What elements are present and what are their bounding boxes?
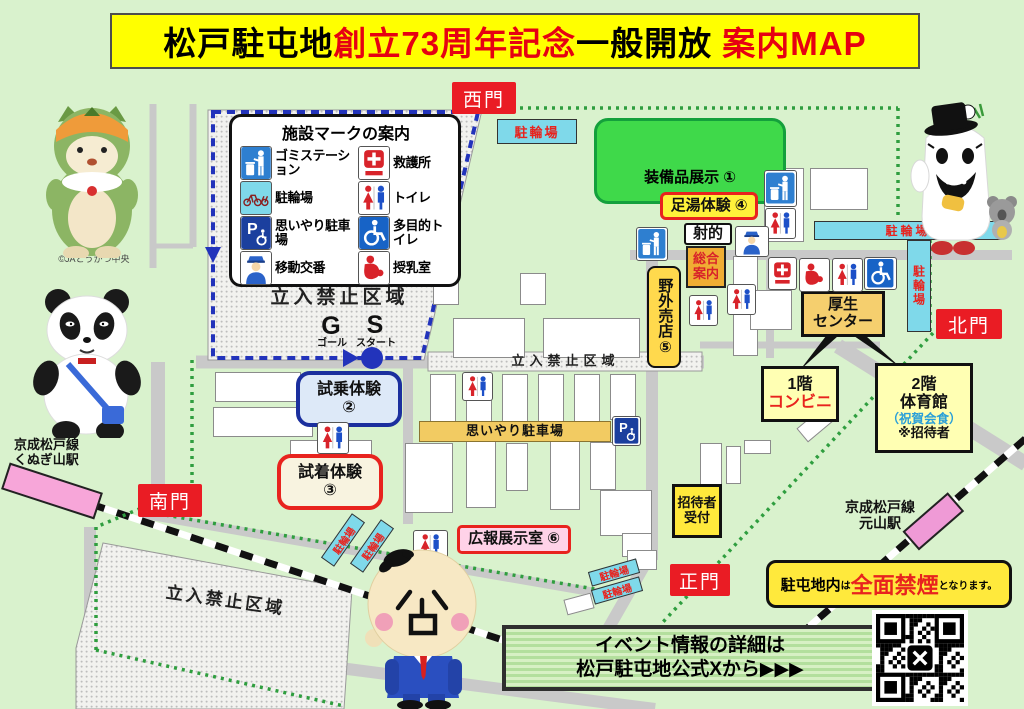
toilet-icon xyxy=(765,208,796,239)
legend-item: 駐輪場 xyxy=(240,180,358,215)
floor1-convenience-label: 1階 コンビニ xyxy=(761,366,839,422)
title-part1: 松戸駐屯地 xyxy=(163,17,333,65)
priority-parking-icon xyxy=(612,416,641,446)
trash-station-icon xyxy=(764,170,797,207)
invitee-reception-label: 招待者 受付 xyxy=(672,484,722,538)
no-smoking-main: 全面禁煙 xyxy=(851,568,939,600)
legend-item: 移動交番 xyxy=(240,250,358,285)
test-ride-line1: 試乗体験 xyxy=(317,381,381,399)
garrison-open-house-map: 立入禁止区域 立入禁止区域 立入禁止区域 G S ゴール スタート 西門 北門 … xyxy=(0,0,1024,709)
test-ride-line2: ② xyxy=(342,399,356,417)
event-info-line1: イベント情報の詳細は xyxy=(595,634,785,658)
no-smoking-pre: 駐屯地内 xyxy=(781,574,841,595)
mascot-matsudo-san xyxy=(356,542,494,709)
legend-item-label: ゴミステーション xyxy=(275,149,358,176)
station-name: 元山駅 xyxy=(859,516,901,532)
accessible-toilet-icon xyxy=(358,216,390,250)
facility-legend: 施設マークの案内 ゴミステーション 救護所 駐輪場 トイレ 思いやり駐車場 xyxy=(229,114,461,287)
welfare-center-label: 厚生 センター xyxy=(801,291,885,337)
floor1-line2: コンビニ xyxy=(768,394,832,412)
toilet-icon xyxy=(727,284,756,315)
building xyxy=(538,374,564,422)
shooting-range-label: 射的 xyxy=(684,223,732,245)
motoyama-station-label: 京成松戸線 元山駅 xyxy=(833,496,927,536)
building xyxy=(574,374,600,422)
try-on-line2: ③ xyxy=(323,482,337,500)
nursing-room-icon xyxy=(799,258,830,292)
goal-label: ゴール xyxy=(310,338,354,350)
station-name: くぬぎ山駅 xyxy=(14,453,79,468)
title-part2: 創立73周年記念 xyxy=(333,17,576,65)
legend-item-label: 思いやり駐車場 xyxy=(275,219,358,246)
building xyxy=(502,374,528,422)
building xyxy=(744,440,771,454)
legend-item-label: 移動交番 xyxy=(275,261,325,274)
building xyxy=(726,446,741,484)
building xyxy=(506,443,528,491)
title-part3: 一般開放 xyxy=(576,17,712,65)
toilet-icon xyxy=(689,295,718,326)
legend-item: 授乳室 xyxy=(358,250,454,285)
first-aid-icon xyxy=(768,257,797,290)
test-ride-label: 試乗体験 ② xyxy=(296,371,402,427)
restricted-area-label: 立入禁止区域 xyxy=(252,286,427,310)
start-letter: S xyxy=(362,311,388,339)
south-gate-label: 南門 xyxy=(138,484,202,517)
qr-code xyxy=(872,610,968,706)
no-smoking-particle: は xyxy=(841,577,851,592)
reception-line1: 招待者 xyxy=(677,496,716,511)
legend-item: ゴミステーション xyxy=(240,145,358,180)
outdoor-shop-label: 野外売店⑤ xyxy=(647,266,681,368)
legend-item: 思いやり駐車場 xyxy=(240,215,358,250)
toilet-icon xyxy=(462,372,493,401)
building xyxy=(520,273,546,305)
building xyxy=(700,443,722,488)
legend-item-label: 救護所 xyxy=(393,156,431,169)
building xyxy=(430,374,456,422)
legend-item-label: トイレ xyxy=(393,191,431,204)
no-smoking-notice: 駐屯地内 は 全面禁煙 となります。 xyxy=(766,560,1012,608)
general-info-line1: 総合 xyxy=(693,252,719,267)
legend-item: 多目的トイレ xyxy=(358,215,454,250)
bicycle-parking-icon xyxy=(240,181,272,215)
toilet-icon xyxy=(832,258,863,292)
legend-item-label: 授乳室 xyxy=(393,261,431,274)
main-gate-label: 正門 xyxy=(670,564,730,596)
building xyxy=(550,438,580,510)
reception-line2: 受付 xyxy=(684,511,710,526)
welfare-center-line2: センター xyxy=(813,314,873,331)
building xyxy=(590,442,616,490)
north-gate-label: 北門 xyxy=(936,309,1002,339)
goal-start-point xyxy=(361,347,383,369)
general-info-line2: 案内 xyxy=(693,267,719,282)
floor2-line3: （祝賀会食） xyxy=(886,412,961,426)
west-gate-label: 西門 xyxy=(452,82,516,114)
rail-line-name: 京成松戸線 xyxy=(14,438,79,453)
floor2-gym-label: 2階 体育館 （祝賀会食） ※招待者 xyxy=(875,363,973,453)
kunugiyama-station-label: 京成松戸線 くぬぎ山駅 xyxy=(14,434,110,472)
legend-item-label: 多目的トイレ xyxy=(393,219,454,246)
goal-letter: G xyxy=(318,312,344,340)
mascot-green-cat xyxy=(36,90,148,258)
start-label: スタート xyxy=(350,338,402,350)
building xyxy=(610,374,636,420)
mobile-police-icon xyxy=(735,226,769,257)
legend-item: トイレ xyxy=(358,180,454,215)
floor2-line2: 体育館 xyxy=(900,394,948,412)
try-on-line1: 試着体験 xyxy=(298,464,362,482)
page-title: 松戸駐屯地創立73周年記念一般開放 案内MAP xyxy=(110,13,920,69)
equipment-display-label: 装備品展示 ① xyxy=(644,166,736,187)
legend-item: 救護所 xyxy=(358,145,454,180)
title-part4: 案内MAP xyxy=(722,17,866,65)
event-info-banner: イベント情報の詳細は 松戸駐屯地公式Xから▶▶▶ xyxy=(502,625,878,691)
footbath-label: 足湯体験 ④ xyxy=(660,192,758,220)
toilet-icon xyxy=(317,422,349,454)
building xyxy=(810,168,868,210)
event-info-line2: 松戸駐屯地公式Xから▶▶▶ xyxy=(576,658,804,682)
trash-station-icon xyxy=(240,146,272,180)
welfare-center-line1: 厚生 xyxy=(828,297,858,314)
legend-title: 施設マークの案内 xyxy=(240,120,452,144)
mascot-panda xyxy=(28,286,150,438)
no-smoking-post: となります。 xyxy=(939,577,998,592)
priority-parking-bar: 思いやり駐車場 xyxy=(419,421,611,442)
mascot-white-ghost xyxy=(890,96,1018,264)
legend-item-label: 駐輪場 xyxy=(275,191,313,204)
nursing-room-icon xyxy=(358,251,390,285)
floor2-line1: 2階 xyxy=(912,376,937,394)
building xyxy=(466,440,496,508)
floor2-line4: ※招待者 xyxy=(898,426,950,441)
rail-line-name: 京成松戸線 xyxy=(845,500,915,516)
mobile-police-icon xyxy=(240,251,272,285)
toilet-icon xyxy=(358,181,390,215)
bicycle-parking-label: 駐輪場 xyxy=(497,119,577,144)
building xyxy=(215,372,301,402)
first-aid-icon xyxy=(358,146,390,180)
try-on-label: 試着体験 ③ xyxy=(277,454,383,510)
general-info-label: 総合 案内 xyxy=(686,246,726,288)
building xyxy=(405,443,453,513)
priority-parking-icon xyxy=(240,216,272,250)
building xyxy=(750,290,792,330)
building xyxy=(600,490,652,536)
trash-station-icon xyxy=(636,227,668,261)
floor1-line1: 1階 xyxy=(788,376,813,394)
